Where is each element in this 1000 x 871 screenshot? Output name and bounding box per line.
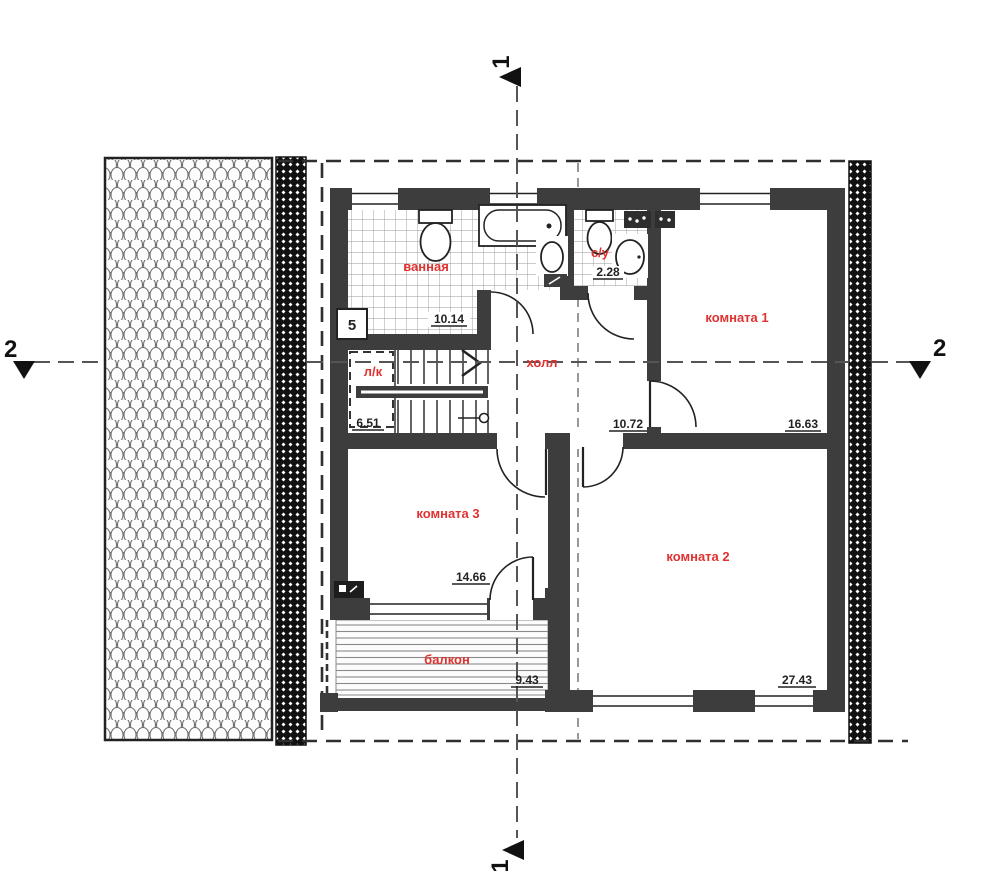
section2-arrow-left — [13, 361, 35, 379]
stair-arrow-start — [480, 414, 489, 423]
door-balcony — [490, 557, 533, 600]
wall-wc-bottom-a — [560, 286, 588, 300]
dim-room1: 16.63 — [788, 417, 818, 431]
dim-wc: 2.28 — [596, 265, 620, 279]
floor-plan-drawing: 1 1 2 2 5 ванная с/у комната 1 холл л/к … — [0, 0, 1000, 871]
wall-wc-bottom-b — [634, 286, 661, 300]
opening-room3-door — [497, 433, 545, 449]
fixture-callout-number: 5 — [348, 317, 356, 334]
balcony-corner-post — [320, 693, 338, 712]
room-label-bathroom: ванная — [403, 259, 449, 274]
vent-blocks-wc — [624, 211, 675, 228]
section1-label-bottom: 1 — [487, 859, 514, 871]
window-top-1 — [352, 188, 398, 210]
room-label-wc: с/у — [591, 245, 610, 260]
insulation-strip-left — [276, 157, 306, 745]
window-top-3 — [700, 188, 770, 210]
roof-left-area — [105, 157, 306, 745]
wall-hall-room1-lower — [647, 427, 661, 449]
dim-room3: 14.66 — [456, 570, 486, 584]
balcony-corner-box — [334, 581, 364, 598]
door-bathroom — [491, 292, 533, 334]
wall-bath-door-stub — [477, 290, 491, 336]
opening-room2-door — [570, 433, 623, 449]
dim-hall: 10.72 — [613, 417, 643, 431]
balcony-bottom-rail — [336, 698, 554, 711]
section2-label-right: 2 — [933, 335, 946, 362]
room-label-room3: комната 3 — [416, 506, 479, 521]
roof-right-column — [849, 161, 871, 743]
dim-balcony: 9.43 — [515, 673, 539, 687]
wall-bath-bottom — [348, 334, 491, 350]
door-room2 — [583, 447, 623, 487]
wall-left — [330, 210, 348, 618]
section1-arrow-top — [499, 67, 521, 87]
window-bottom-2 — [755, 690, 813, 712]
section2-label-left: 2 — [4, 336, 17, 363]
room-label-room2: комната 2 — [666, 549, 729, 564]
floor-plan-page: 1 1 2 2 5 ванная с/у комната 1 холл л/к … — [0, 0, 1000, 871]
section1-label-top: 1 — [488, 55, 515, 68]
door-room3 — [497, 449, 545, 497]
room-label-room1: комната 1 — [705, 310, 768, 325]
opening-balcony-door — [490, 598, 533, 620]
dim-stairs: 6.51 — [356, 416, 380, 430]
room-label-balcony: балкон — [424, 652, 470, 667]
section2-arrow-right — [909, 361, 931, 379]
dim-room2: 27.43 — [782, 673, 812, 687]
section1-arrow-bottom — [502, 840, 524, 860]
dim-bathroom: 10.14 — [434, 312, 464, 326]
window-bottom-1 — [593, 690, 693, 712]
opening-wc-door — [588, 286, 634, 300]
room-label-stairs: л/к — [364, 364, 383, 379]
bathroom-toilet — [419, 210, 452, 261]
wall-room-divider — [548, 449, 570, 712]
room-label-hall: холл — [526, 355, 557, 370]
wall-divider-head — [545, 588, 570, 620]
fixture-callout: 5 — [337, 309, 367, 339]
wall-right — [827, 210, 845, 712]
window-balcony — [370, 598, 487, 620]
